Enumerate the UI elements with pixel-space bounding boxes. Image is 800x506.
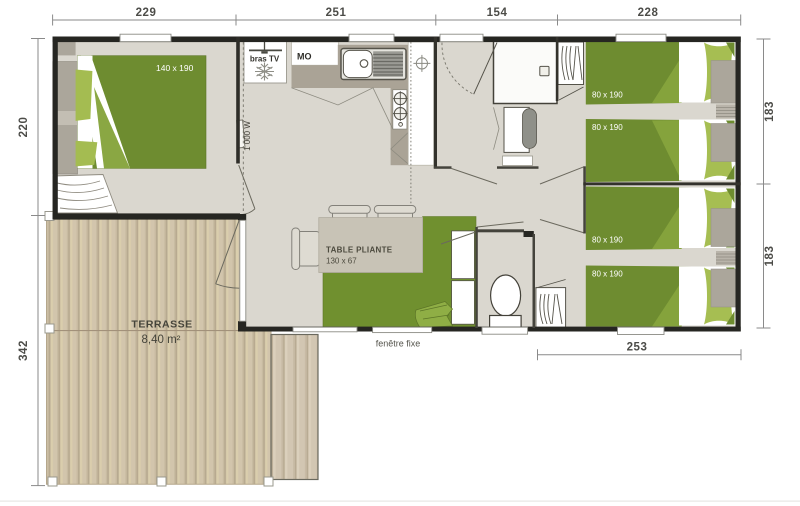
- svg-text:MO: MO: [297, 52, 312, 62]
- svg-text:253: 253: [627, 342, 648, 354]
- svg-text:fenêtre fixe: fenêtre fixe: [376, 339, 421, 349]
- svg-text:140 x 190: 140 x 190: [156, 63, 194, 73]
- svg-text:80 x 190: 80 x 190: [592, 123, 623, 132]
- svg-text:251: 251: [326, 7, 347, 19]
- svg-text:220: 220: [18, 117, 30, 138]
- svg-text:8,40 m²: 8,40 m²: [142, 334, 181, 346]
- svg-text:80 x 190: 80 x 190: [592, 270, 623, 279]
- svg-text:TERRASSE: TERRASSE: [131, 319, 192, 331]
- svg-text:80 x 190: 80 x 190: [592, 236, 623, 245]
- svg-text:342: 342: [18, 340, 30, 361]
- svg-text:bras TV: bras TV: [250, 55, 280, 64]
- svg-text:1 000 W: 1 000 W: [243, 121, 252, 151]
- svg-text:229: 229: [136, 7, 157, 19]
- svg-text:183: 183: [764, 101, 776, 122]
- svg-text:228: 228: [638, 7, 659, 19]
- svg-text:183: 183: [764, 246, 776, 267]
- svg-text:130 x 67: 130 x 67: [326, 257, 357, 266]
- svg-text:154: 154: [487, 7, 508, 19]
- svg-text:80 x 190: 80 x 190: [592, 91, 623, 100]
- svg-text:TABLE PLIANTE: TABLE PLIANTE: [326, 246, 393, 255]
